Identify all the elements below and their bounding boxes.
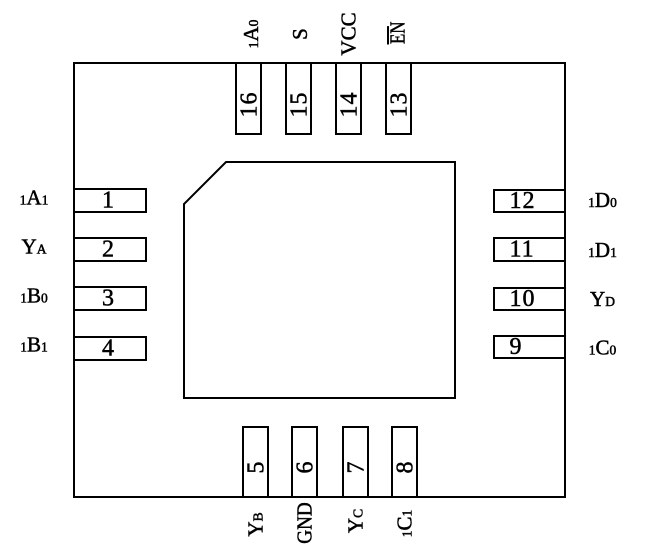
svg-text:8: 8: [393, 461, 419, 474]
svg-text:13: 13: [387, 92, 413, 118]
svg-text:12: 12: [510, 188, 536, 214]
svg-text:6: 6: [293, 461, 319, 474]
svg-text:11: 11: [510, 237, 535, 263]
svg-text:16: 16: [237, 92, 263, 118]
svg-text:7: 7: [344, 461, 370, 474]
svg-text:EN: EN: [386, 22, 410, 45]
svg-text:S: S: [288, 28, 312, 40]
svg-text:1: 1: [102, 188, 115, 214]
svg-text:VCC: VCC: [337, 12, 361, 55]
svg-text:2: 2: [102, 237, 115, 263]
svg-text:10: 10: [510, 286, 536, 312]
svg-text:9: 9: [510, 334, 523, 360]
svg-text:GND: GND: [293, 502, 317, 544]
svg-text:5: 5: [244, 461, 270, 474]
svg-text:4: 4: [102, 336, 115, 362]
svg-text:14: 14: [337, 92, 363, 118]
svg-text:15: 15: [287, 92, 313, 118]
svg-text:3: 3: [102, 286, 115, 312]
